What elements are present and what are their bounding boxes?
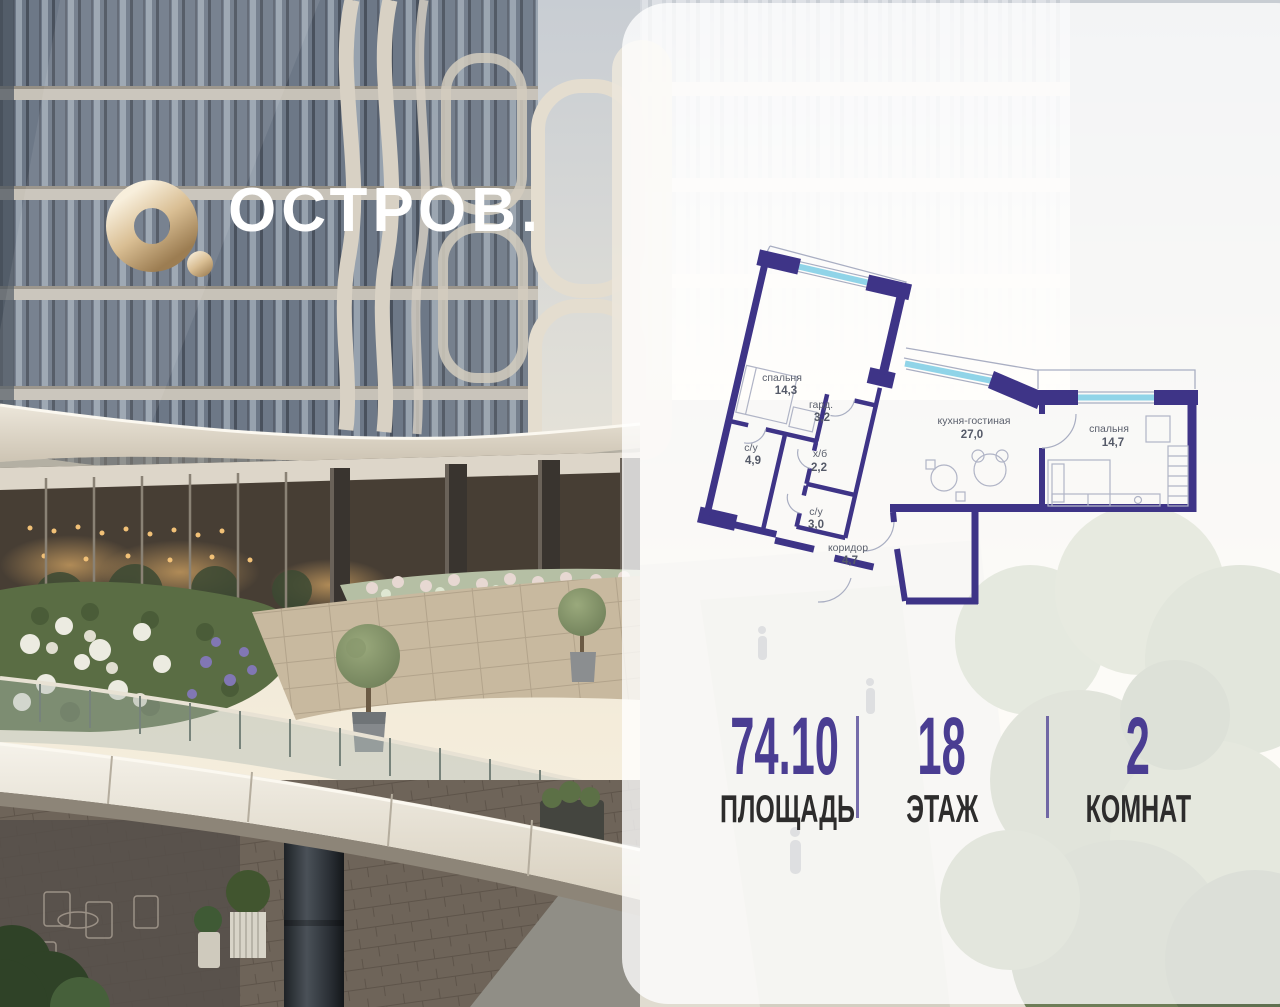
stat-divider xyxy=(1046,716,1049,818)
stat-floor-label: ЭТАЖ xyxy=(906,790,978,829)
stat-rooms: 2 КОМНАТ xyxy=(1053,706,1223,829)
stat-rooms-value: 2 xyxy=(1126,706,1150,788)
stat-floor: 18 ЭТАЖ xyxy=(857,706,1027,829)
stat-area: 74.10 ПЛОЩАДЬ xyxy=(682,706,852,829)
stat-area-value: 74.10 xyxy=(730,706,839,788)
stat-rooms-label: КОМНАТ xyxy=(1085,790,1191,829)
stat-area-label: ПЛОЩАДЬ xyxy=(720,790,855,829)
apartment-promo-card: спальня 14,3 гард. 3,2 с/у 4,9 х/б 2,2 с… xyxy=(0,0,1280,1007)
stat-floor-value: 18 xyxy=(918,706,966,788)
brand-logo-icon xyxy=(96,172,216,292)
brand-logo: ОСТРОВ. xyxy=(96,172,576,292)
info-card xyxy=(622,3,1280,1004)
brand-name: ОСТРОВ. xyxy=(228,180,543,242)
